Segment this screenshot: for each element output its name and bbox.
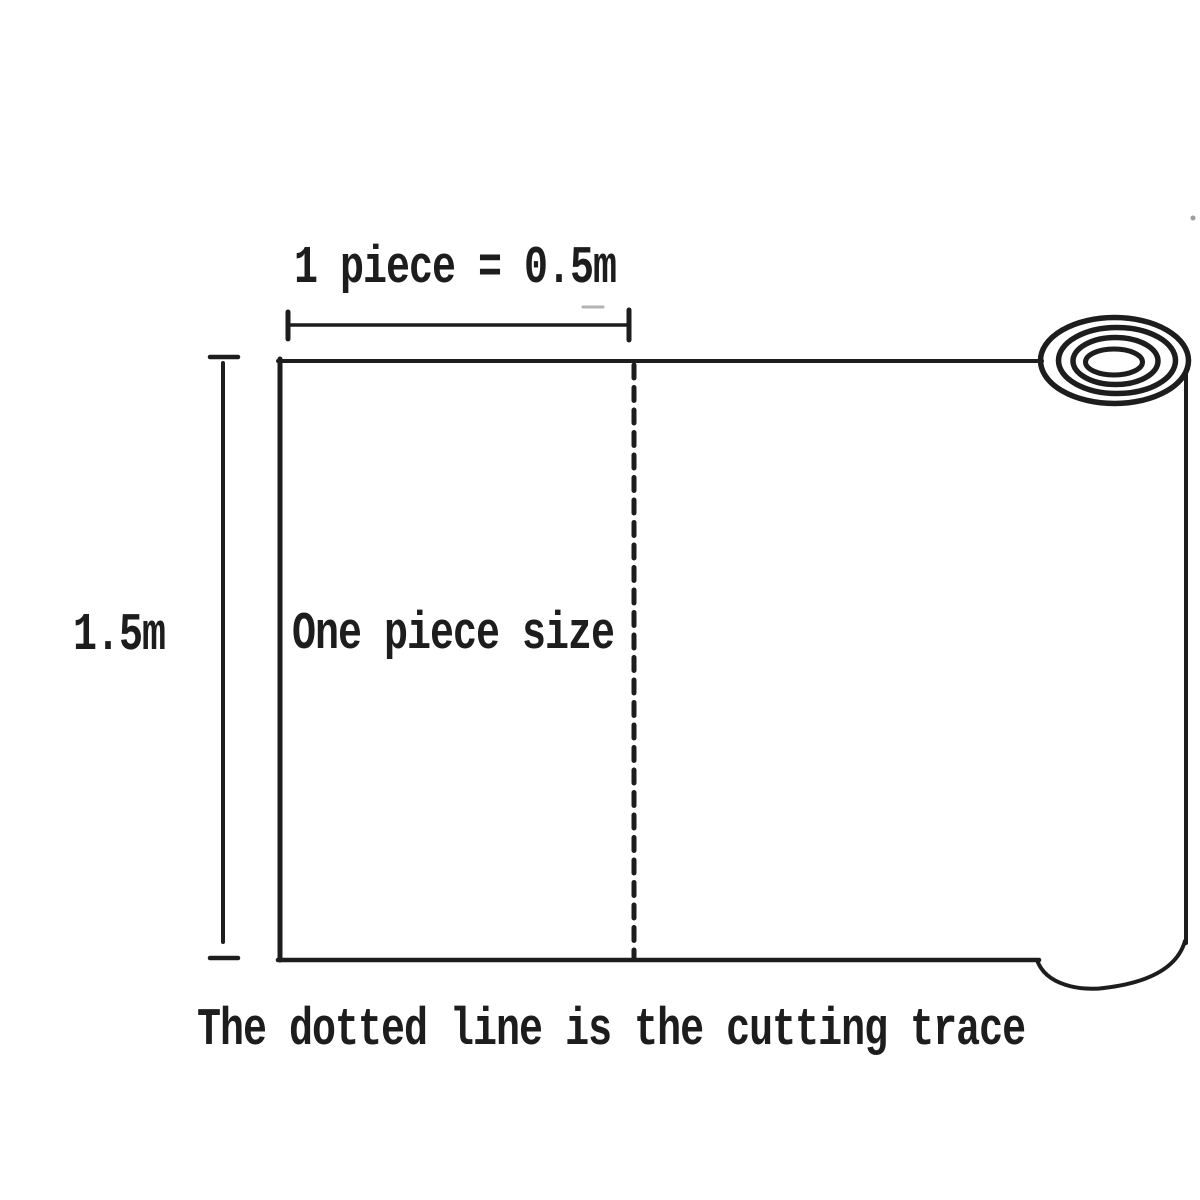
caption-text: The dotted line is the cutting trace [197,1006,1025,1059]
roll-ring-core [1086,349,1143,375]
roll-ring-outer [1041,318,1189,404]
left-dimension-bracket [210,357,238,958]
top-dimension-label: 1 piece = 0.5m [294,244,616,297]
sheet-outline [278,359,1186,989]
roll-end-icon [1041,318,1189,404]
diagram-canvas: 1 piece = 0.5m 1.5m One piece size The d… [0,0,1200,1200]
stray-dot [1191,216,1196,221]
top-dimension-bracket [288,310,629,340]
sheet-size-label: One piece size [292,610,614,663]
left-dimension-label: 1.5m [73,611,165,664]
sheet-curl-curve [1037,941,1185,989]
